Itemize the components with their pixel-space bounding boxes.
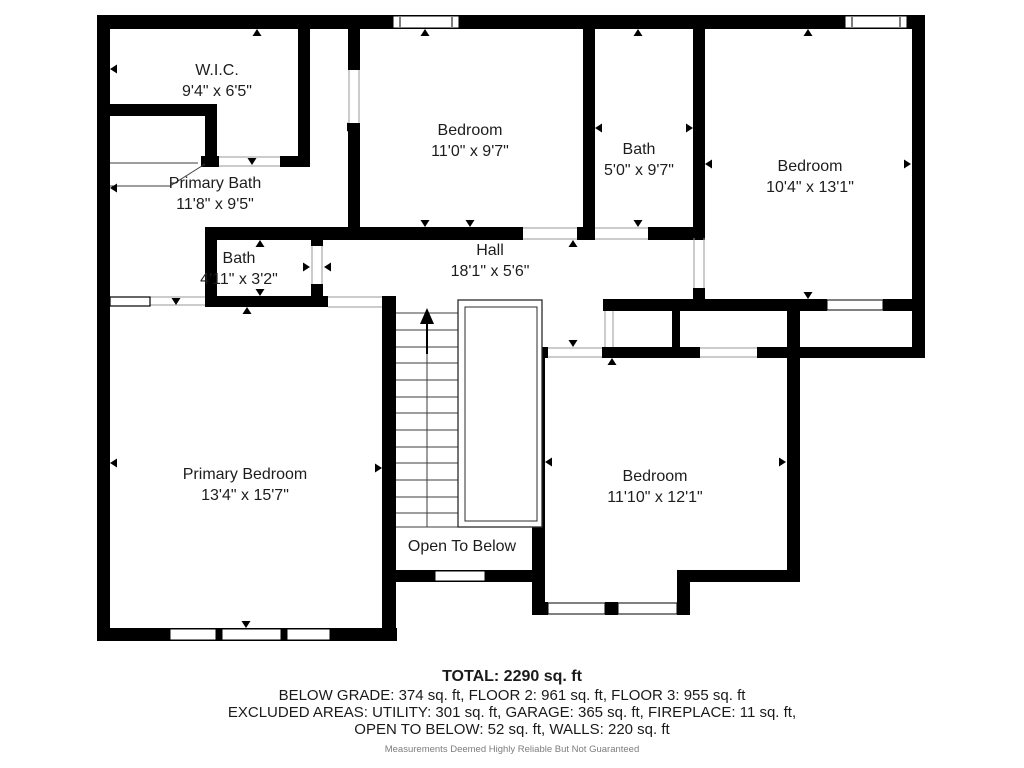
room-dims: 5'0" x 9'7" bbox=[604, 160, 674, 181]
window-open-to-below bbox=[435, 571, 485, 581]
pony-wall bbox=[110, 297, 150, 306]
window-primary-bedroom bbox=[170, 629, 330, 640]
room-label-open-to-below: Open To Below bbox=[408, 536, 516, 557]
summary-line-1: BELOW GRADE: 374 sq. ft, FLOOR 2: 961 sq… bbox=[0, 687, 1024, 704]
room-label-bedroom-right: Bedroom 10'4" x 13'1" bbox=[766, 156, 854, 198]
room-label-bath-upper: Bath 5'0" x 9'7" bbox=[604, 139, 674, 181]
room-label-wic: W.I.C. 9'4" x 6'5" bbox=[182, 60, 252, 102]
open-to-below-shaft bbox=[458, 300, 542, 527]
room-dims: 9'4" x 6'5" bbox=[182, 81, 252, 102]
summary-total: TOTAL: 2290 sq. ft bbox=[0, 668, 1024, 686]
room-dims: 11'8" x 9'5" bbox=[169, 194, 261, 215]
room-name: Open To Below bbox=[408, 536, 516, 557]
room-label-hall: Hall 18'1" x 5'6" bbox=[451, 240, 530, 282]
opening-right-bedroom-wall bbox=[827, 300, 883, 310]
room-name: Bedroom bbox=[431, 120, 509, 141]
room-dims: 13'4" x 15'7" bbox=[183, 485, 307, 506]
room-dims: 11'10" x 12'1" bbox=[607, 487, 702, 508]
room-label-bedroom-top: Bedroom 11'0" x 9'7" bbox=[431, 120, 509, 162]
summary-line-2: EXCLUDED AREAS: UTILITY: 301 sq. ft, GAR… bbox=[0, 704, 1024, 721]
room-dims: 18'1" x 5'6" bbox=[451, 261, 530, 282]
room-dims: 4'11" x 3'2" bbox=[200, 269, 278, 290]
room-name: Bedroom bbox=[766, 156, 854, 177]
room-dims: 11'0" x 9'7" bbox=[431, 141, 509, 162]
floorplan-page: W.I.C. 9'4" x 6'5" Bedroom 11'0" x 9'7" … bbox=[0, 0, 1024, 768]
window-top-right bbox=[845, 16, 907, 28]
room-name: Primary Bedroom bbox=[183, 464, 307, 485]
room-label-bath-small: Bath 4'11" x 3'2" bbox=[200, 248, 278, 290]
room-name: Bath bbox=[604, 139, 674, 160]
room-label-primary-bath: Primary Bath 11'8" x 9'5" bbox=[169, 173, 261, 215]
room-label-bedroom-bottom: Bedroom 11'10" x 12'1" bbox=[607, 466, 702, 508]
room-name: Bedroom bbox=[607, 466, 702, 487]
room-label-primary-bedroom: Primary Bedroom 13'4" x 15'7" bbox=[183, 464, 307, 506]
stairs-icon bbox=[396, 308, 458, 527]
room-name: Hall bbox=[451, 240, 530, 261]
room-name: W.I.C. bbox=[182, 60, 252, 81]
summary-disclaimer: Measurements Deemed Highly Reliable But … bbox=[0, 744, 1024, 755]
room-name: Bath bbox=[200, 248, 278, 269]
window-top-left bbox=[393, 16, 459, 28]
summary-line-3: OPEN TO BELOW: 52 sq. ft, WALLS: 220 sq.… bbox=[0, 721, 1024, 738]
room-name: Primary Bath bbox=[169, 173, 261, 194]
floorplan-drawing bbox=[0, 0, 1024, 768]
room-dims: 10'4" x 13'1" bbox=[766, 177, 854, 198]
